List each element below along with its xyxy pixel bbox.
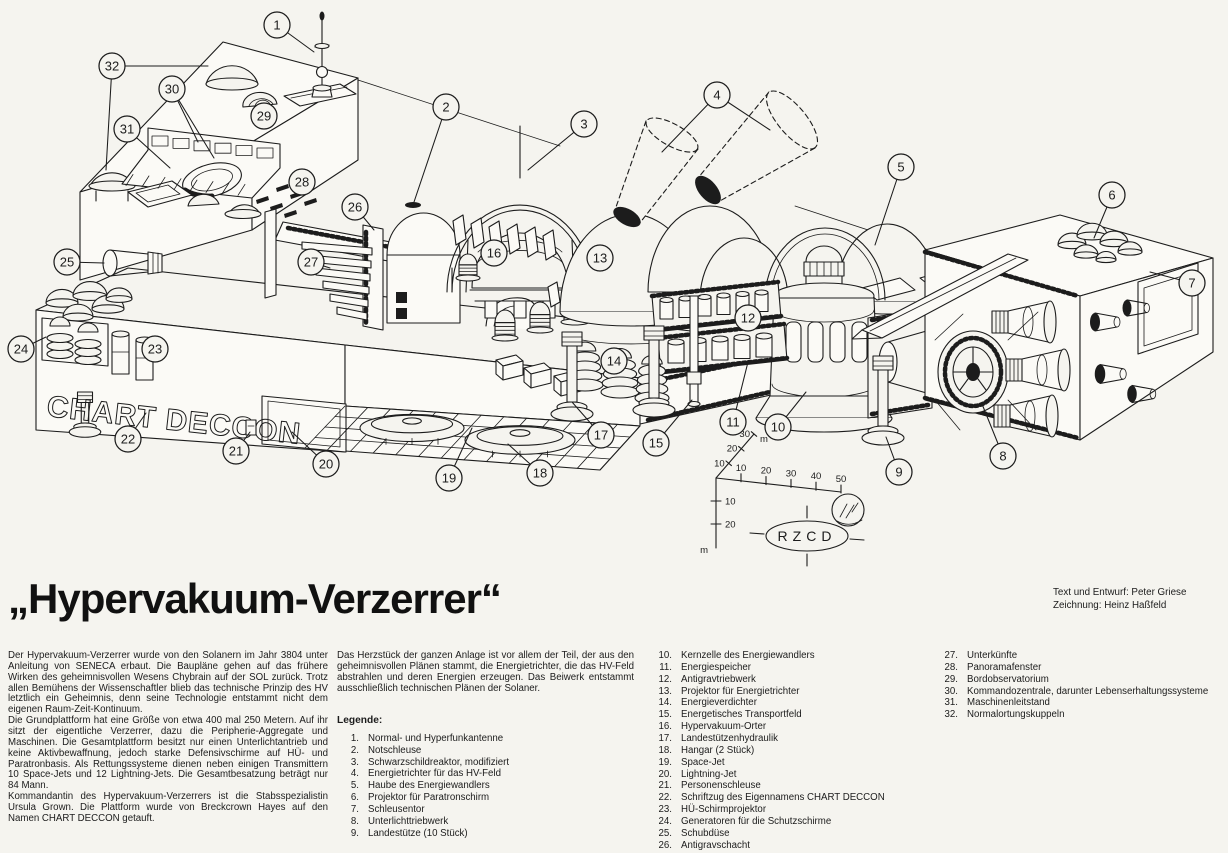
- legend-item: 26.Antigravschacht: [650, 841, 938, 852]
- callout-number: 17: [594, 428, 608, 443]
- shield-generators-cutaway: [42, 317, 108, 366]
- intro-column: Der Hypervakuum-Verzerrer wurde von den …: [8, 651, 328, 825]
- callout-number: 11: [726, 415, 740, 430]
- legend-column-3: 27.Unterkünfte28.Panoramafenster29.Bordo…: [936, 651, 1226, 722]
- marker-code: RZCD: [778, 528, 837, 544]
- legend-item: 32.Normalortungskuppeln: [936, 710, 1226, 721]
- callout-number: 15: [649, 436, 663, 451]
- legend-item: 6.Projektor für Paratronschirm: [337, 793, 634, 804]
- callout-number: 4: [713, 88, 720, 103]
- legend-item: 1.Normal- und Hyperfunkantenne: [337, 734, 634, 745]
- svg-text:20: 20: [725, 520, 736, 531]
- credits: Text und Entwurf: Peter Griese Zeichnung…: [1053, 586, 1186, 612]
- credit-line: Text und Entwurf: Peter Griese: [1053, 586, 1186, 599]
- callout-number: 27: [304, 255, 318, 270]
- svg-text:20: 20: [727, 444, 738, 455]
- legend-item: 9.Landestütze (10 Stück): [337, 829, 634, 840]
- artist-monogram: [832, 494, 864, 526]
- silo-dome: [387, 213, 460, 323]
- callout-number: 21: [229, 444, 243, 459]
- callout-number: 5: [897, 160, 904, 175]
- callout-number: 13: [593, 251, 607, 266]
- callout-number: 29: [257, 109, 271, 124]
- legend-item: 8.Unterlichttriebwerk: [337, 817, 634, 828]
- svg-text:m: m: [700, 545, 708, 556]
- credit-line: Zeichnung: Heinz Haßfeld: [1053, 599, 1186, 612]
- callout-number: 12: [741, 311, 755, 326]
- svg-text:10: 10: [736, 463, 747, 474]
- legend-item: 13.Projektor für Energietrichter: [650, 687, 938, 698]
- caption-row: „Hypervakuum-Verzerrer“ Text und Entwurf…: [8, 576, 1220, 622]
- legend-item: 2.Notschleuse: [337, 746, 634, 757]
- callout-number: 9: [895, 465, 902, 480]
- legend-list: 10.Kernzelle des Energiewandlers11.Energ…: [650, 651, 938, 852]
- callout-number: 6: [1108, 188, 1115, 203]
- legend-item: 4.Energietrichter für das HV-Feld: [337, 769, 634, 780]
- callout-number: 30: [165, 82, 179, 97]
- callout-number: 20: [319, 457, 333, 472]
- intro-paragraph: Das Herzstück der ganzen Anlage ist vor …: [337, 651, 634, 694]
- legend-item: 17.Landestützenhydraulik: [650, 734, 938, 745]
- legend-item: 16.Hypervakuum-Orter: [650, 722, 938, 733]
- legend-item: 10.Kernzelle des Energiewandlers: [650, 651, 938, 662]
- intro-paragraph: Kommandantin des Hypervakuum-Verzerrers …: [8, 792, 328, 825]
- callout-number: 18: [533, 466, 547, 481]
- page-title: „Hypervakuum-Verzerrer“: [8, 576, 1220, 622]
- svg-text:m: m: [760, 434, 768, 445]
- legend-item: 31.Maschinenleitstand: [936, 698, 1226, 709]
- legend-item: 18.Hangar (2 Stück): [650, 746, 938, 757]
- callout-number: 25: [60, 255, 74, 270]
- legend-column-1: Das Herzstück der ganzen Anlage ist vor …: [337, 651, 634, 841]
- legend-item: 7.Schleusentor: [337, 805, 634, 816]
- legend-item: 3.Schwarzschildreaktor, modifiziert: [337, 758, 634, 769]
- callout-number: 28: [295, 175, 309, 190]
- svg-text:40: 40: [811, 471, 822, 482]
- legend-item: 30.Kommandozentrale, darunter Lebenserha…: [936, 687, 1226, 698]
- legend-item: 21.Personenschleuse: [650, 781, 938, 792]
- maintenance-hatch: [405, 202, 421, 208]
- legend-item: 24.Generatoren für die Schutzschirme: [650, 817, 938, 828]
- svg-text:30: 30: [786, 468, 797, 479]
- legend-column-2: 10.Kernzelle des Energiewandlers11.Energ…: [650, 651, 938, 853]
- legend-item: 19.Space-Jet: [650, 758, 938, 769]
- svg-text:20: 20: [761, 466, 772, 477]
- svg-text:50: 50: [836, 474, 847, 485]
- legend-item: 27.Unterkünfte: [936, 651, 1226, 662]
- legend-item: 15.Energetisches Transportfeld: [650, 710, 938, 721]
- callout-number: 31: [120, 122, 134, 137]
- callout-number: 8: [999, 449, 1006, 464]
- technical-drawing: CHART DECCON 102030m1020304050m1020m RZC…: [0, 0, 1228, 572]
- callout-number: 26: [348, 200, 362, 215]
- legend-item: 29.Bordobservatorium: [936, 675, 1226, 686]
- callout-number: 7: [1188, 276, 1195, 291]
- legend-list: 27.Unterkünfte28.Panoramafenster29.Bordo…: [936, 651, 1226, 721]
- legend-item: 11.Energiespeicher: [650, 663, 938, 674]
- scale-figure: 102030m1020304050m1020m RZCD: [700, 429, 864, 566]
- intro-paragraph: Die Grundplattform hat eine Größe von et…: [8, 716, 328, 792]
- callout-number: 14: [607, 354, 621, 369]
- callout-number: 3: [580, 117, 587, 132]
- person-airlock: [246, 420, 256, 435]
- svg-text:10: 10: [714, 458, 725, 469]
- legend-item: 5.Haube des Energiewandlers: [337, 781, 634, 792]
- field-ring: [938, 331, 1008, 413]
- legend-item: 12.Antigravtriebwerk: [650, 675, 938, 686]
- callout-number: 32: [105, 59, 119, 74]
- legend-item: 28.Panoramafenster: [936, 663, 1226, 674]
- svg-text:10: 10: [725, 497, 736, 508]
- legend-item: 23.HÜ-Schirmprojektor: [650, 805, 938, 816]
- callout-number: 24: [14, 342, 28, 357]
- callout-number: 22: [121, 432, 135, 447]
- callout-number: 19: [442, 471, 456, 486]
- callout-number: 10: [771, 420, 785, 435]
- callout-number: 16: [487, 246, 501, 261]
- legend-item: 25.Schubdüse: [650, 829, 938, 840]
- page: CHART DECCON 102030m1020304050m1020m RZC…: [0, 0, 1228, 841]
- legend-heading: Legende:: [337, 715, 634, 726]
- storage-racks: [652, 282, 787, 374]
- legend-item: 20.Lightning-Jet: [650, 770, 938, 781]
- callout-number: 1: [273, 18, 280, 33]
- intro-paragraph: Der Hypervakuum-Verzerrer wurde von den …: [8, 651, 328, 716]
- legend-item: 14.Energieverdichter: [650, 698, 938, 709]
- legend-item: 22.Schriftzug des Eigennamens CHART DECC…: [650, 793, 938, 804]
- callout-number: 2: [442, 100, 449, 115]
- callout-number: 23: [148, 342, 162, 357]
- legend-list: 1.Normal- und Hyperfunkantenne2.Notschle…: [337, 734, 634, 840]
